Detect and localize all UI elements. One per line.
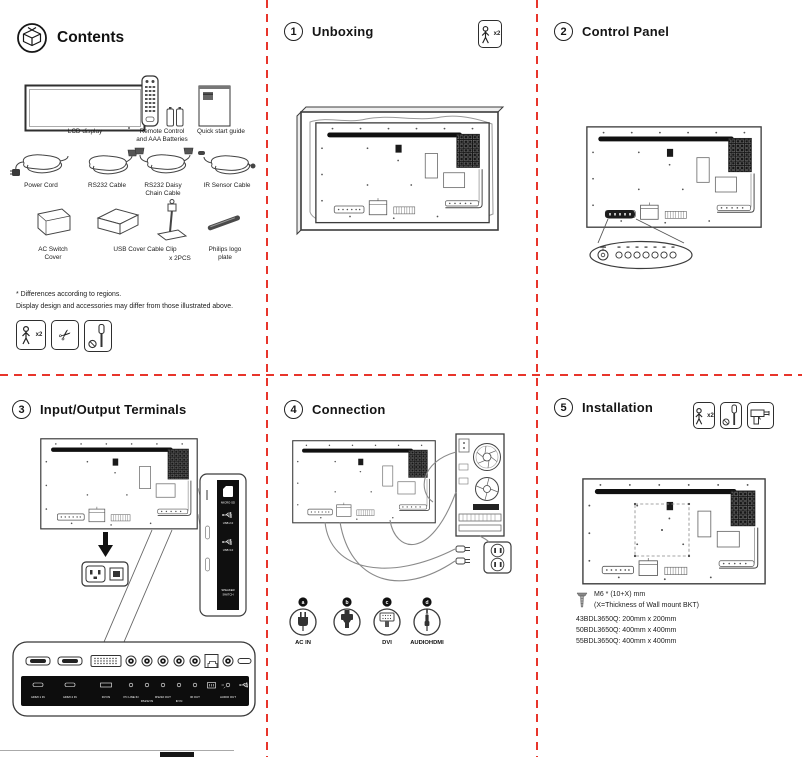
section-unboxing: 1 Unboxing x2 — [268, 0, 536, 374]
display-back-illustration — [293, 441, 436, 523]
svg-text:HDMI 1 IN: HDMI 1 IN — [31, 695, 45, 699]
section-contents: Contents — [0, 0, 266, 374]
svg-text:RS232 OUT: RS232 OUT — [155, 695, 171, 699]
side-port-label: MICRO SD — [221, 501, 235, 505]
section-title: Control Panel — [582, 24, 669, 39]
pc-tower-illustration — [456, 434, 504, 536]
connector-label: AUDIOHDMI — [410, 640, 444, 646]
cutoff-next-section-bar — [160, 752, 194, 757]
svg-text:IR IN: IR IN — [176, 699, 183, 703]
display-back-illustration — [583, 479, 765, 584]
contents-title: Contents — [57, 29, 124, 47]
people-count-label: x2 — [494, 31, 501, 37]
terminal-row-callout: HDMI 1 IN HDMI 2 IN DVI IN PC LINE IN RS… — [13, 642, 255, 716]
drill-icon — [749, 406, 772, 426]
control-panel-illustration — [578, 124, 778, 270]
item-caption: Power Cord — [10, 182, 72, 190]
scissors-required-icon: ✂ — [51, 320, 79, 350]
item-caption: AC Switch Cover — [24, 246, 82, 263]
people-count-label: x2 — [707, 413, 714, 419]
cable-clip-illustration — [152, 198, 192, 244]
contents-header: Contents — [16, 22, 124, 54]
rs232-daisy-chain-cable-illustration — [132, 146, 194, 180]
step-number: 5 — [554, 398, 573, 417]
connector-b: b — [334, 597, 360, 635]
usb-cover-illustration — [92, 204, 146, 240]
svg-text:a: a — [302, 600, 305, 606]
side-port-strip: MICRO SD USB 2.0 USB 3.0 SPEAKER SWITCH — [200, 474, 246, 616]
ac-inlet-callout — [82, 562, 128, 586]
step-number: 4 — [284, 400, 303, 419]
people-count-label: x2 — [36, 332, 43, 338]
drill-required-icon — [747, 402, 774, 429]
accessories-note: Display design and accessories may diffe… — [16, 303, 233, 310]
side-port-label: SWITCH — [222, 593, 233, 597]
installation-header: 5 Installation — [554, 398, 653, 417]
micro-sd-slot-icon — [223, 486, 233, 497]
svg-text:PC LINE IN: PC LINE IN — [124, 695, 139, 699]
io-illustration: MICRO SD USB 2.0 USB 3.0 SPEAKER SWITCH — [2, 426, 264, 750]
screw-spec-line2: (X=Thickness of Wall mount BKT) — [594, 602, 699, 609]
screwdriver-icon — [721, 404, 741, 427]
svg-text:c: c — [386, 600, 389, 606]
ac-arrow — [98, 532, 113, 557]
side-port-label: USB 3.0 — [223, 548, 234, 552]
display-back-illustration — [41, 439, 197, 529]
model-vesa-spec: 55BDL3650Q: 400mm x 400mm — [576, 638, 676, 645]
section-io-terminals: 3 Input/Output Terminals MICRO SD USB 2.… — [0, 376, 266, 757]
display-back-illustration — [316, 123, 489, 223]
io-header: 3 Input/Output Terminals — [12, 400, 186, 419]
unboxing-header: 1 Unboxing — [284, 22, 374, 41]
model-vesa-spec: 50BDL3650Q: 400mm x 400mm — [576, 627, 676, 634]
screw-spec-line1: M6 * (10+X) mm — [594, 591, 645, 598]
ac-switch-cover-illustration — [28, 204, 80, 242]
quick-start-guide-page: Contents — [0, 0, 802, 757]
quick-start-guide-illustration — [198, 82, 232, 128]
lcd-display-illustration — [24, 84, 146, 132]
package-box-icon — [16, 22, 48, 54]
control-keypad-callout — [590, 242, 692, 269]
svg-text:HDMI 2 IN: HDMI 2 IN — [63, 695, 77, 699]
item-caption: RS232 Daisy Chain Cable — [132, 182, 194, 199]
item-caption: USB Cover Cable Clip — [84, 246, 206, 254]
side-port-label: SPEAKER — [221, 588, 234, 592]
regions-note: * Differences according to regions. — [16, 291, 121, 298]
svg-text:IR OUT: IR OUT — [190, 695, 200, 699]
mount-screw-icon — [576, 592, 588, 609]
section-control-panel: 2 Control Panel — [538, 0, 802, 374]
connector-label: DVI — [382, 640, 392, 646]
connector-d: d AUDIOHDMI — [410, 597, 444, 646]
person-icon — [20, 324, 35, 346]
aaa-batteries-illustration — [167, 107, 183, 126]
section-connection: 4 Connection — [268, 376, 536, 757]
side-port-label: USB 2.0 — [223, 521, 234, 525]
connector-a: a AC IN — [290, 597, 316, 646]
svg-text:AUDIO OUT: AUDIO OUT — [220, 695, 236, 699]
step-number: 3 — [12, 400, 31, 419]
two-people-required-icon: x2 — [478, 20, 502, 48]
svg-text:DVI IN: DVI IN — [102, 695, 111, 699]
person-icon — [694, 406, 706, 426]
connection-header: 4 Connection — [284, 400, 386, 419]
audio-out-port — [223, 656, 233, 666]
connector-label: AC IN — [295, 640, 311, 646]
control-panel-header: 2 Control Panel — [554, 22, 669, 41]
section-installation: 5 Installation x2 — [538, 376, 802, 757]
section-title: Connection — [312, 402, 386, 417]
cutoff-next-section-line — [0, 750, 234, 751]
svg-text:d: d — [425, 600, 428, 606]
section-title: Input/Output Terminals — [40, 402, 186, 417]
item-caption: IR Sensor Cable — [196, 182, 258, 190]
section-title: Installation — [582, 400, 653, 415]
two-people-required-icon: x2 — [693, 402, 715, 429]
item-caption: Quick start guide — [190, 128, 252, 136]
screwdriver-required-icon — [720, 402, 742, 429]
power-cord-illustration — [10, 146, 72, 180]
model-vesa-spec: 43BDL3650Q: 200mm x 200mm — [576, 616, 676, 623]
step-number: 2 — [554, 22, 573, 41]
wall-outlet-illustration — [484, 542, 511, 573]
installation-illustration — [580, 476, 768, 588]
svg-text:RS232 IN: RS232 IN — [141, 699, 154, 703]
connector-c: c DVI — [374, 597, 400, 646]
item-caption: Philips logo plate — [196, 246, 254, 263]
philips-logo-plate-illustration — [198, 210, 252, 236]
connection-illustration: a AC IN b — [270, 422, 534, 742]
svg-text:b: b — [345, 600, 348, 606]
scissors-icon: ✂ — [54, 324, 75, 346]
remote-control-illustration — [138, 74, 186, 130]
power-plugs — [456, 546, 470, 564]
terminal-label-strip — [21, 676, 249, 706]
rs232-cable-illustration — [76, 148, 138, 180]
section-title: Unboxing — [312, 24, 374, 39]
unboxing-illustration — [296, 102, 510, 238]
screwdriver-icon — [86, 323, 110, 350]
ac-inlet-icon — [86, 566, 105, 582]
item-caption: RS232 Cable — [76, 182, 138, 190]
person-icon — [480, 24, 493, 45]
step-number: 1 — [284, 22, 303, 41]
ir-sensor-cable-illustration — [196, 148, 258, 180]
two-people-required-icon: x2 — [16, 320, 46, 350]
screwdriver-required-icon — [84, 320, 112, 352]
